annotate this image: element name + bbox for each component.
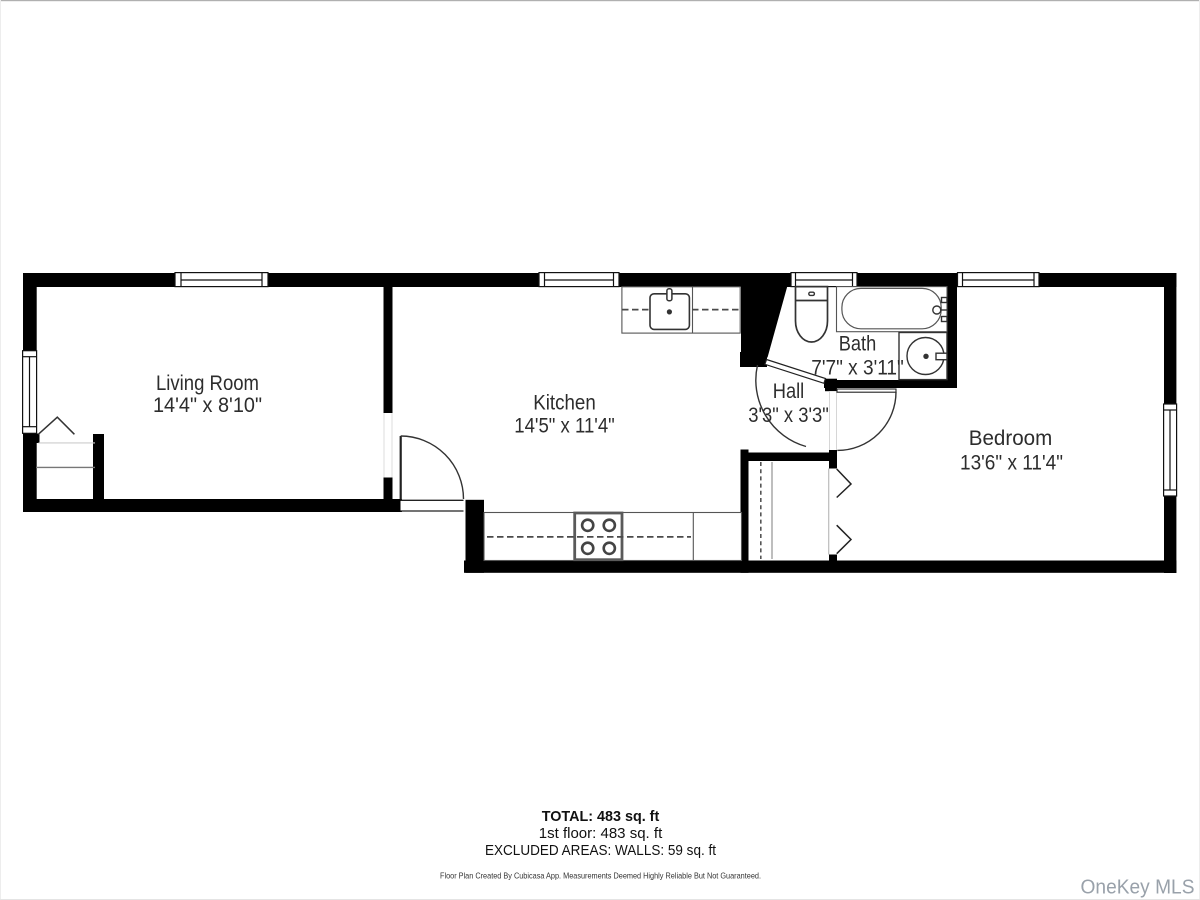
svg-text:14'4" x 8'10": 14'4" x 8'10"	[153, 394, 262, 417]
svg-text:Floor Plan Created By Cubicasa: Floor Plan Created By Cubicasa App. Meas…	[440, 870, 761, 880]
svg-text:Hall: Hall	[773, 380, 805, 403]
svg-text:Kitchen: Kitchen	[533, 392, 596, 415]
svg-text:EXCLUDED AREAS: WALLS: 59 sq.: EXCLUDED AREAS: WALLS: 59 sq. ft	[485, 842, 717, 859]
svg-text:13'6" x 11'4": 13'6" x 11'4"	[960, 452, 1063, 475]
svg-text:OneKey MLS: OneKey MLS	[1081, 877, 1195, 899]
svg-text:14'5" x 11'4": 14'5" x 11'4"	[514, 415, 615, 438]
svg-text:3'3" x 3'3": 3'3" x 3'3"	[748, 404, 829, 427]
svg-text:Bath: Bath	[839, 333, 877, 356]
svg-text:Bedroom: Bedroom	[969, 427, 1053, 450]
svg-text:Living Room: Living Room	[156, 372, 259, 395]
svg-text:TOTAL: 483 sq. ft: TOTAL: 483 sq. ft	[542, 808, 660, 825]
svg-text:1st floor: 483 sq. ft: 1st floor: 483 sq. ft	[539, 825, 663, 842]
svg-text:7'7" x 3'11": 7'7" x 3'11"	[811, 357, 904, 380]
